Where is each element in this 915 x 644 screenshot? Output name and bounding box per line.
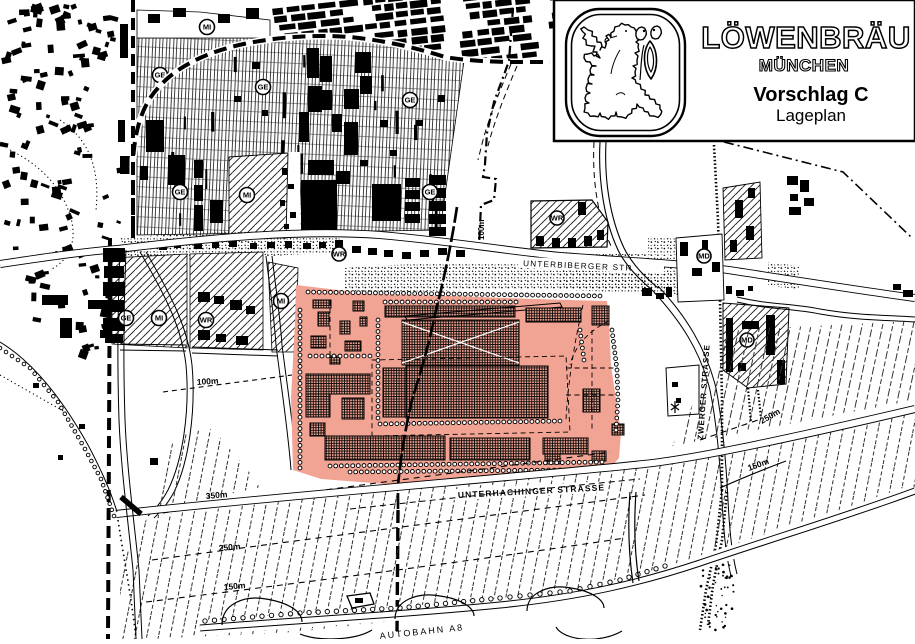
svg-text:WR: WR bbox=[551, 214, 564, 223]
svg-text:GE: GE bbox=[425, 188, 436, 197]
svg-text:150m: 150m bbox=[223, 580, 246, 592]
svg-text:MI: MI bbox=[203, 23, 211, 32]
svg-text:GE: GE bbox=[258, 83, 269, 92]
svg-text:Vorschlag C: Vorschlag C bbox=[753, 84, 868, 106]
svg-text:100m: 100m bbox=[196, 375, 219, 387]
svg-text:250m: 250m bbox=[218, 541, 241, 553]
svg-text:MI: MI bbox=[155, 314, 163, 323]
svg-text:LÖWENBRÄU: LÖWENBRÄU bbox=[701, 20, 910, 55]
svg-text:WR: WR bbox=[200, 316, 213, 325]
svg-text:MI: MI bbox=[243, 191, 251, 200]
svg-text:GE: GE bbox=[121, 314, 132, 323]
svg-text:GE: GE bbox=[175, 188, 186, 197]
svg-text:GE: GE bbox=[405, 96, 416, 105]
svg-text:100m: 100m bbox=[477, 220, 486, 240]
svg-text:Lageplan: Lageplan bbox=[776, 106, 846, 125]
svg-text:MÜNCHEN: MÜNCHEN bbox=[759, 56, 849, 75]
svg-text:MD: MD bbox=[698, 252, 710, 261]
svg-text:WR: WR bbox=[333, 250, 346, 259]
